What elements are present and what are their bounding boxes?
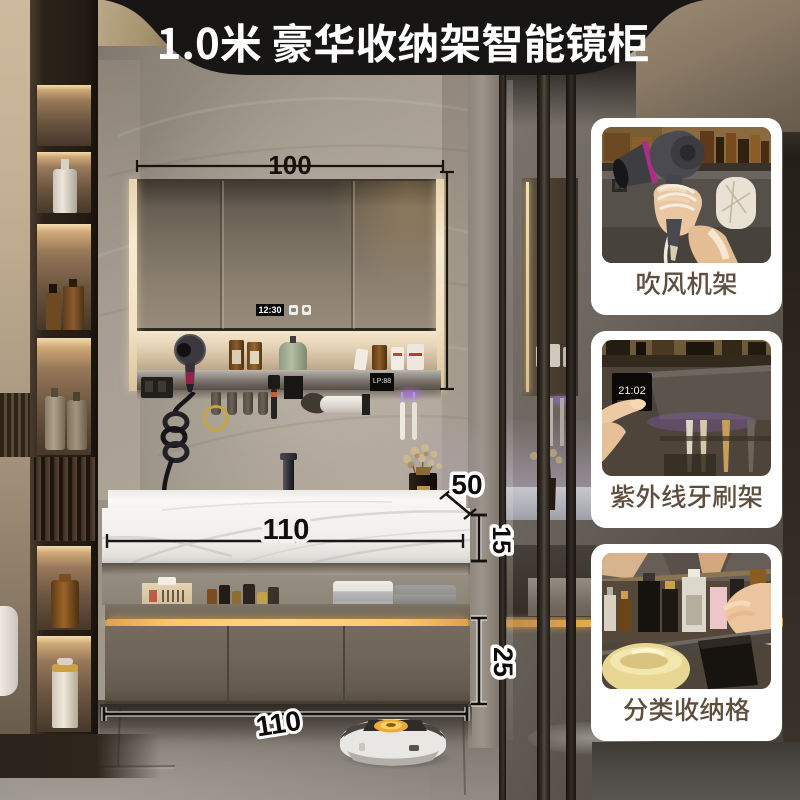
svg-text:50: 50 (451, 469, 482, 500)
svg-text:110: 110 (254, 705, 303, 743)
svg-text:25: 25 (488, 647, 518, 677)
svg-text:110: 110 (263, 514, 310, 546)
svg-text:100: 100 (268, 150, 311, 180)
svg-text:21:02: 21:02 (618, 385, 646, 397)
svg-text:15: 15 (487, 526, 515, 554)
